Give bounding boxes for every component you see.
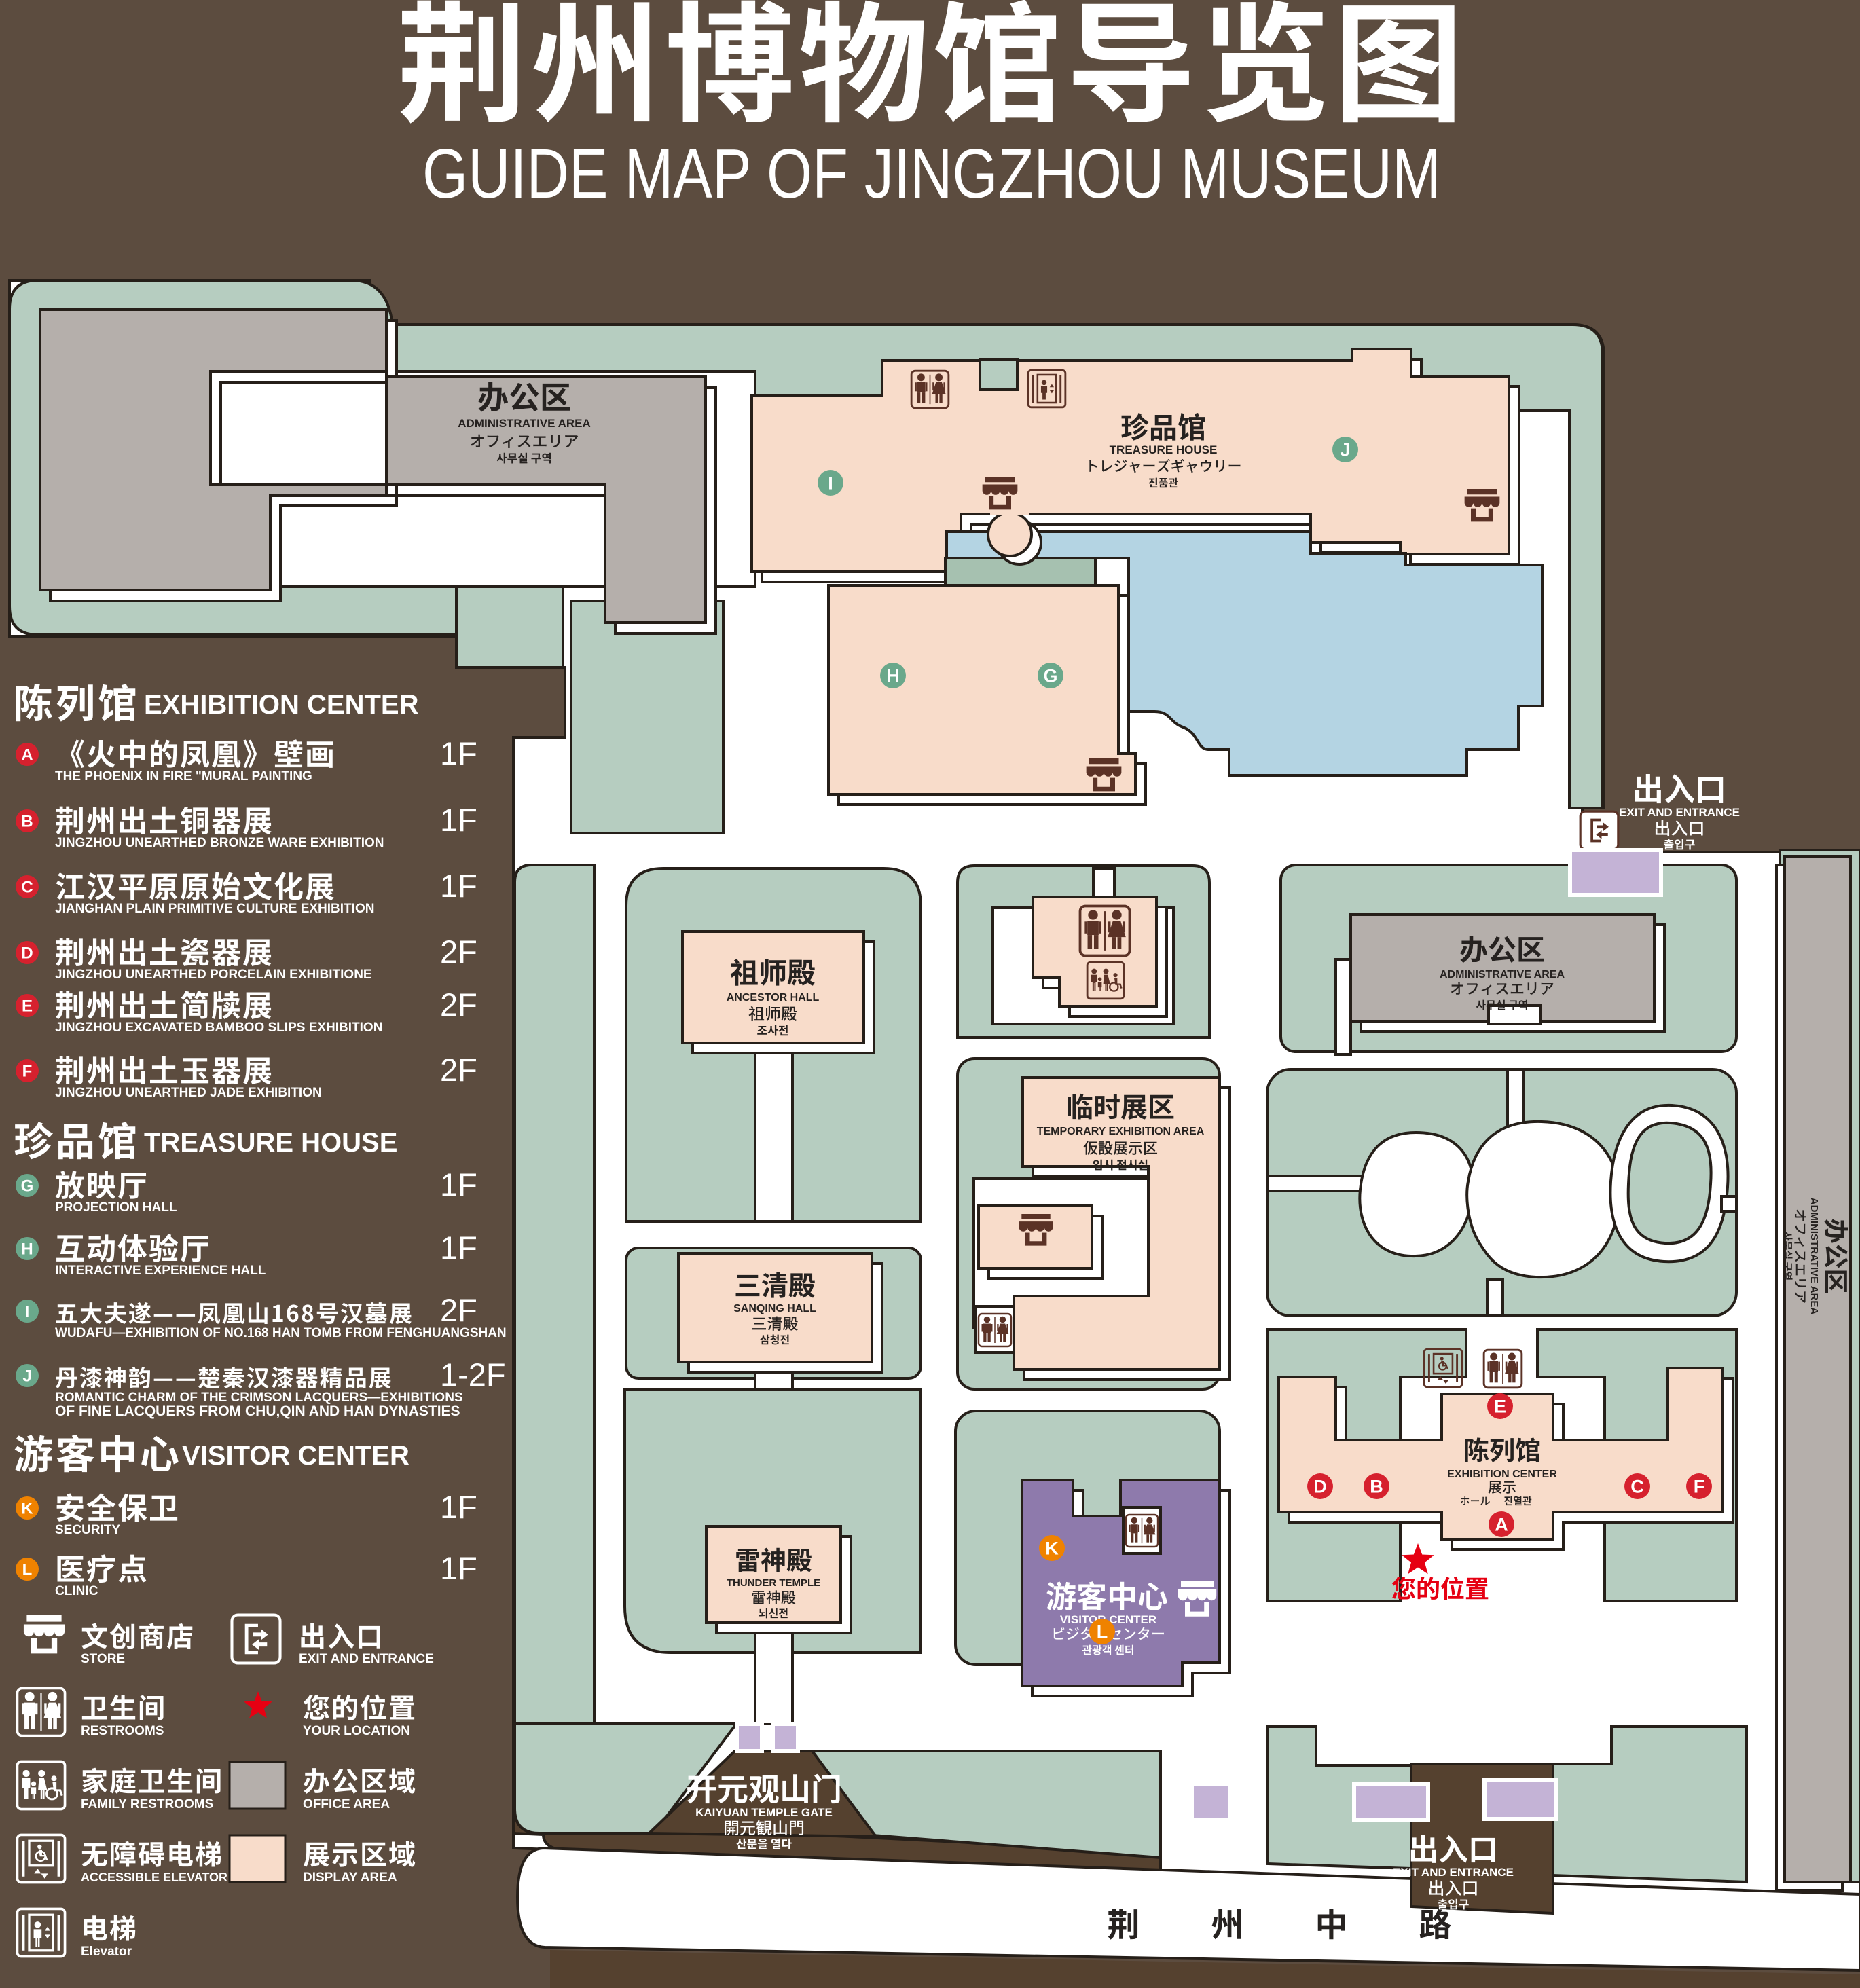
svg-text:G: G [21, 1177, 34, 1196]
svg-text:H: H [21, 1240, 33, 1259]
svg-text:CLINIC: CLINIC [55, 1584, 98, 1598]
svg-text:OFFICE AREA: OFFICE AREA [303, 1797, 390, 1811]
svg-text:STORE: STORE [81, 1652, 125, 1666]
svg-text:1F: 1F [440, 735, 477, 771]
svg-text:K: K [21, 1500, 33, 1518]
svg-text:VISITOR CENTER: VISITOR CENTER [182, 1441, 409, 1471]
svg-text:Elevator: Elevator [81, 1945, 132, 1959]
svg-text:1F: 1F [440, 868, 477, 904]
svg-text:L: L [22, 1561, 33, 1579]
svg-text:1-2F: 1-2F [440, 1357, 506, 1393]
svg-text:OF FINE LACQUERS FROM CHU,QIN: OF FINE LACQUERS FROM CHU,QIN AND HAN DY… [55, 1403, 460, 1419]
svg-text:F: F [1694, 1477, 1705, 1497]
svg-text:GUIDE MAP OF JINGZHOU MUSEUM: GUIDE MAP OF JINGZHOU MUSEUM [422, 134, 1441, 213]
svg-text:2F: 2F [440, 987, 477, 1023]
svg-text:I: I [828, 473, 833, 494]
svg-text:A: A [21, 746, 33, 765]
svg-text:B: B [1370, 1477, 1383, 1497]
svg-text:D: D [21, 944, 33, 963]
svg-text:JIANGHAN PLAIN PRIMITIVE CULTU: JIANGHAN PLAIN PRIMITIVE CULTURE EXHIBIT… [55, 902, 374, 916]
svg-text:L: L [1097, 1622, 1108, 1642]
svg-text:2F: 2F [440, 1292, 477, 1328]
svg-text:EXIT AND ENTRANCE: EXIT AND ENTRANCE [1393, 1866, 1514, 1879]
svg-text:ADMINISTRATIVE AREA: ADMINISTRATIVE AREA [458, 417, 591, 430]
svg-text:K: K [1045, 1539, 1059, 1559]
svg-text:JINGZHOU UNEARTHED BRONZE WARE: JINGZHOU UNEARTHED BRONZE WARE EXHIBITIO… [55, 836, 384, 850]
svg-text:ADMINISTRATIVE AREA: ADMINISTRATIVE AREA [1808, 1198, 1820, 1315]
svg-text:SECURITY: SECURITY [55, 1523, 120, 1537]
svg-text:F: F [22, 1063, 33, 1081]
svg-text:G: G [1043, 666, 1057, 686]
svg-text:E: E [1494, 1397, 1506, 1417]
svg-text:J: J [1340, 440, 1350, 460]
svg-text:ADMINISTRATIVE AREA: ADMINISTRATIVE AREA [1440, 969, 1565, 980]
svg-text:ACCESSIBLE ELEVATOR: ACCESSIBLE ELEVATOR [81, 1871, 227, 1884]
svg-text:EXIT AND ENTRANCE: EXIT AND ENTRANCE [299, 1652, 434, 1666]
svg-text:1F: 1F [440, 1489, 477, 1525]
svg-text:PROJECTION HALL: PROJECTION HALL [55, 1200, 177, 1215]
svg-text:I: I [25, 1303, 30, 1321]
svg-text:DISPLAY AREA: DISPLAY AREA [303, 1871, 397, 1885]
svg-text:H: H [886, 666, 900, 686]
svg-text:FAMILY RESTROOMS: FAMILY RESTROOMS [81, 1797, 213, 1811]
svg-text:ANCESTOR HALL: ANCESTOR HALL [727, 992, 820, 1004]
svg-text:THUNDER TEMPLE: THUNDER TEMPLE [727, 1577, 820, 1589]
svg-text:WUDAFU—EXHIBITION OF NO.168 HA: WUDAFU—EXHIBITION OF NO.168 HAN TOMB FRO… [55, 1326, 507, 1340]
svg-text:1F: 1F [440, 1550, 477, 1586]
svg-text:ROMANTIC CHARM OF THE CRIMSON: ROMANTIC CHARM OF THE CRIMSON LACQUERS—E… [55, 1391, 463, 1405]
svg-text:1F: 1F [440, 1166, 477, 1202]
svg-text:YOUR LOCATION: YOUR LOCATION [303, 1724, 410, 1738]
svg-text:JINGZHOU UNEARTHED PORCELAIN E: JINGZHOU UNEARTHED PORCELAIN EXHIBITIONE [55, 968, 372, 982]
svg-text:E: E [22, 997, 33, 1016]
svg-text:C: C [21, 879, 33, 897]
svg-text:KAIYUAN TEMPLE GATE: KAIYUAN TEMPLE GATE [695, 1806, 833, 1819]
svg-text:A: A [1495, 1515, 1508, 1535]
svg-text:EXHIBITION CENTER: EXHIBITION CENTER [1447, 1469, 1557, 1480]
svg-text:2F: 2F [440, 934, 477, 970]
svg-text:C: C [1630, 1477, 1644, 1497]
svg-text:INTERACTIVE EXPERIENCE HALL: INTERACTIVE EXPERIENCE HALL [55, 1264, 266, 1278]
svg-text:EXIT AND ENTRANCE: EXIT AND ENTRANCE [1619, 806, 1740, 819]
svg-text:1F: 1F [440, 802, 477, 838]
svg-text:RESTROOMS: RESTROOMS [81, 1724, 164, 1738]
svg-text:JINGZHOU UNEARTHED JADE EXHIBI: JINGZHOU UNEARTHED JADE EXHIBITION [55, 1086, 322, 1100]
svg-text:B: B [21, 813, 33, 831]
svg-text:TREASURE HOUSE: TREASURE HOUSE [144, 1128, 397, 1158]
svg-text:SANQING HALL: SANQING HALL [733, 1303, 816, 1314]
svg-text:EXHIBITION CENTER: EXHIBITION CENTER [144, 690, 419, 720]
svg-text:JINGZHOU EXCAVATED BAMBOO SLIP: JINGZHOU EXCAVATED BAMBOO SLIPS EXHIBITI… [55, 1020, 382, 1035]
svg-text:2F: 2F [440, 1052, 477, 1088]
svg-text:TREASURE HOUSE: TREASURE HOUSE [1110, 443, 1218, 456]
svg-text:D: D [1313, 1477, 1327, 1497]
svg-text:1F: 1F [440, 1230, 477, 1266]
svg-text:TEMPORARY EXHIBITION AREA: TEMPORARY EXHIBITION AREA [1037, 1126, 1205, 1137]
svg-text:THE PHOENIX IN FIRE "MURAL PAI: THE PHOENIX IN FIRE "MURAL PAINTING [55, 769, 312, 784]
svg-text:J: J [22, 1367, 31, 1386]
